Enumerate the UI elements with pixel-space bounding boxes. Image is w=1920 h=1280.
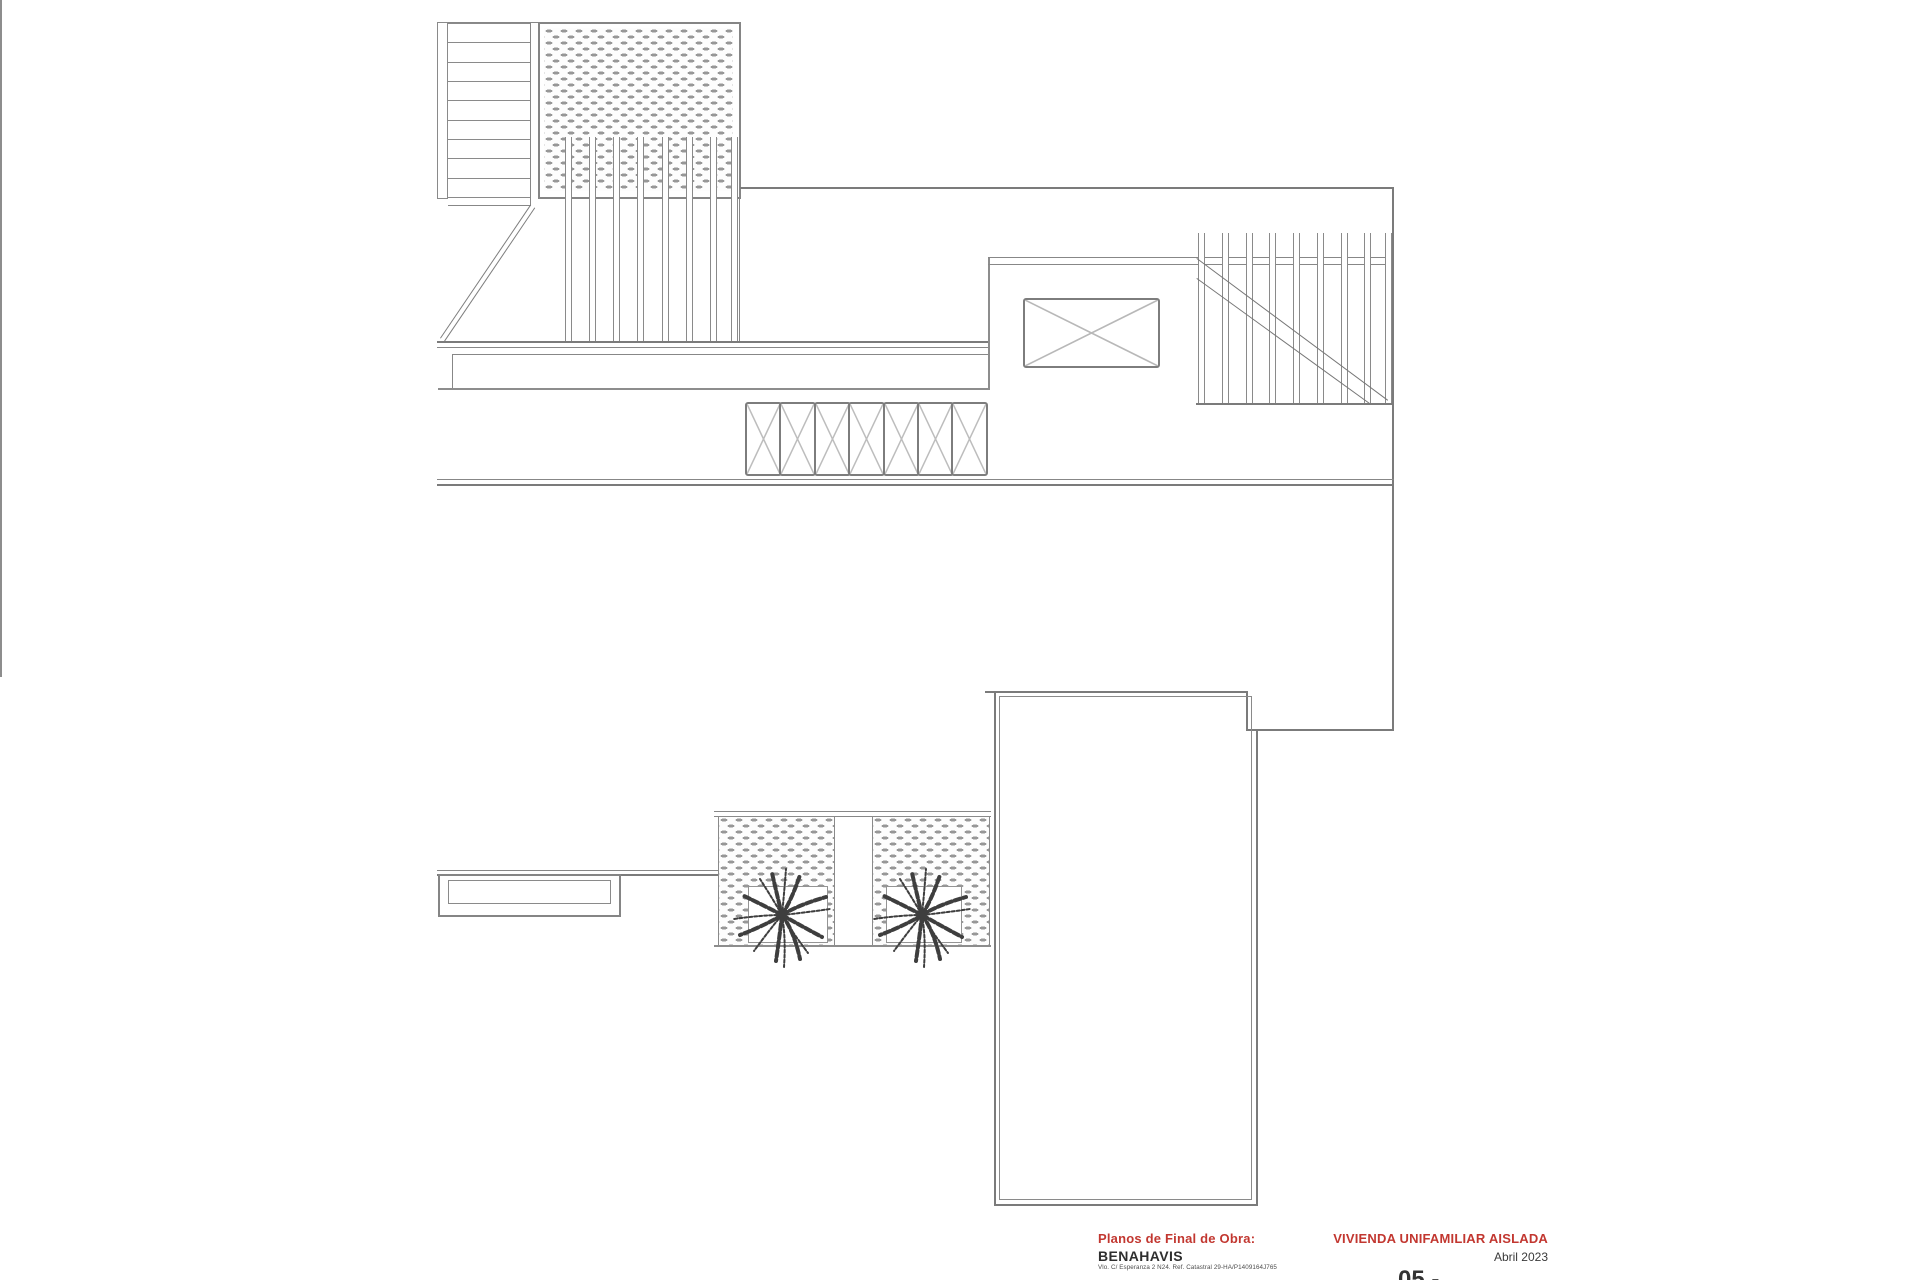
pergola-slat (662, 137, 669, 341)
address-line: Vlo. C/ Esperanza 2 N24. Ref. Catastral … (1098, 1264, 1277, 1271)
floor-plan-canvas: Planos de Final de Obra: VIVIENDA UNIFAM… (0, 0, 1920, 1280)
pergola-slat (1222, 233, 1229, 403)
pergola-slat (637, 137, 644, 341)
deck-right-edge-extension (739, 195, 740, 341)
lower-roof-step-horiz (1246, 729, 1394, 731)
stair-tread (448, 62, 530, 63)
band-recess-left (452, 354, 453, 388)
pergola-slat (1293, 233, 1300, 403)
palm-plant-icon (727, 860, 837, 978)
pergola-slat (1385, 233, 1392, 403)
roof-split-line-a (437, 479, 1394, 480)
stair-tread (448, 178, 530, 179)
stair-tread (448, 42, 530, 43)
stair-stringer (437, 22, 448, 199)
pergola-slat (731, 137, 738, 341)
planter-top-line-a (714, 811, 991, 812)
pergola-slat (589, 137, 596, 341)
x-cross-icon (1025, 300, 1158, 366)
palm-plant-icon (867, 860, 977, 978)
parapet-line-b (988, 264, 1391, 265)
doc-type-label: Planos de Final de Obra: (1098, 1231, 1255, 1246)
pergola-slat (565, 137, 572, 341)
lower-roof-top-edge (985, 691, 1248, 693)
roof-top-edge (740, 187, 1394, 189)
stair-tread (448, 158, 530, 159)
stair-right-edge (530, 23, 531, 206)
stair-tread (448, 120, 530, 121)
lower-roof-bottom-edge (994, 1204, 1258, 1206)
pergola-slat (1364, 233, 1371, 403)
pergola-slat (1198, 233, 1205, 403)
bottom-edge-inner (437, 870, 720, 871)
beam-x-box (917, 402, 954, 476)
date-label: Abril 2023 (1348, 1250, 1548, 1264)
location-label: BENAHAVIS (1098, 1248, 1183, 1264)
band-inner-line (437, 347, 988, 348)
stair-bottom-edge (448, 205, 531, 206)
building-left-edge (0, 0, 2, 677)
pergola-slat (1341, 233, 1348, 403)
pergola-slat (710, 137, 717, 341)
skylight-x-rect (1023, 298, 1160, 368)
beam-x-box (779, 402, 816, 476)
parapet-line-a (988, 257, 1391, 258)
pergola-slat (686, 137, 693, 341)
beam-x-box (951, 402, 988, 476)
pergola-slat (1317, 233, 1324, 403)
building-right-edge (1392, 187, 1394, 731)
beam-x-box (814, 402, 851, 476)
stair-tread (448, 23, 530, 24)
stair-tread (448, 100, 530, 101)
beam-x-box (883, 402, 920, 476)
roof-split-line-b (437, 484, 1394, 486)
pergola-slat (1269, 233, 1276, 403)
terrace-step-inner (448, 880, 611, 904)
band-bottom-line (438, 388, 988, 390)
sheet-number: 05 - (1398, 1270, 1468, 1280)
notch-vertical (988, 257, 990, 390)
lower-roof-left-edge (994, 691, 996, 1206)
stair-tread (448, 139, 530, 140)
band-top-line (437, 341, 988, 343)
beam-x-box (848, 402, 885, 476)
ramp-diagonal (440, 205, 535, 342)
lower-roof-inner-line (999, 696, 1252, 1200)
beam-x-box (745, 402, 782, 476)
pergola-slat (613, 137, 620, 341)
stair-tread (448, 81, 530, 82)
lower-roof-right-edge (1256, 729, 1258, 1206)
project-label: VIVIENDA UNIFAMILIAR AISLADA (1248, 1231, 1548, 1246)
pergola-bottom-line (1196, 403, 1392, 405)
stair-tread (448, 197, 530, 198)
band-recess-top (452, 354, 988, 355)
